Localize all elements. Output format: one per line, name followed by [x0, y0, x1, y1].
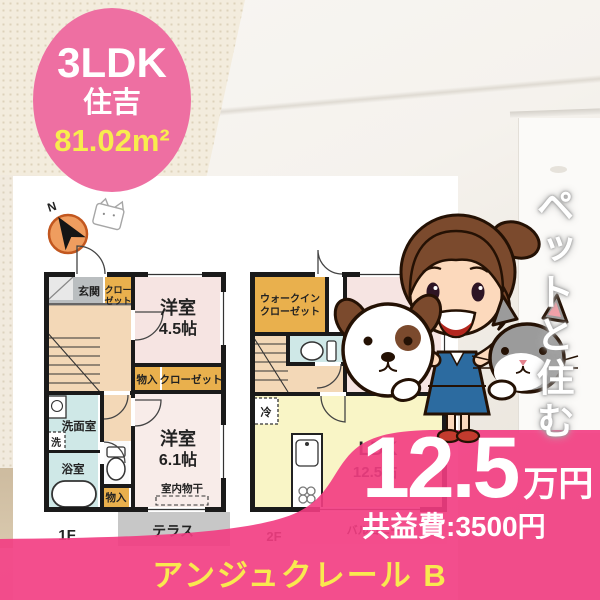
common-fee: 共益費:3500円 — [362, 512, 597, 543]
property-name: アンジュクレール B — [0, 550, 600, 595]
rent-amount: 12.5 — [362, 428, 517, 510]
rent-unit: 万円 — [523, 467, 593, 502]
side-banner-text: ペットと住む — [524, 186, 579, 456]
price-block: 12.5 万円 共益費:3500円 — [362, 428, 597, 542]
listing-image: N — [0, 0, 600, 600]
